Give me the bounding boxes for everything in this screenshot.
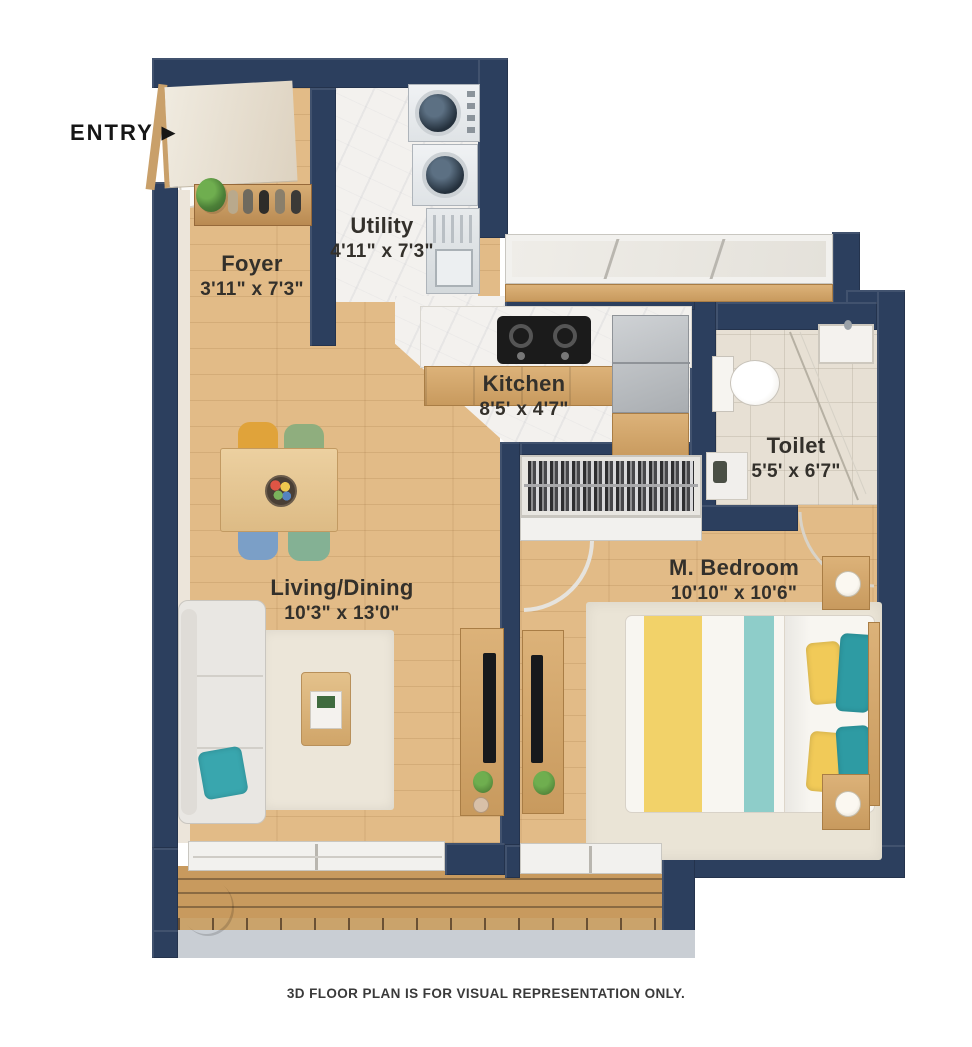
toilet-shelf [706,452,748,500]
utility-sink-basin [435,249,473,287]
dining-chair-blue [238,528,278,560]
nightstand-top [822,556,870,610]
wall-bedroom-bottom-left-stub [505,845,520,878]
toilet-bowl [730,360,780,406]
hob [497,316,591,364]
bed-stripe-teal [744,616,774,813]
wall-left [152,182,178,848]
wardrobe-rail-icon [524,484,698,487]
basin-faucet-icon [844,320,852,330]
sofa [178,600,266,824]
bed-stripe-yellow [644,616,702,813]
fridge-gap-line [613,362,690,364]
console-plant-pot-icon [473,771,493,793]
hob-knob-left-icon [517,352,525,360]
coffee-table-tray-icon [310,691,342,729]
kitchen-name: Kitchen [479,370,568,398]
slider-track-line [193,856,442,858]
hob-knob-right-icon [561,352,569,360]
kitchen-tall-shelf [612,413,689,459]
nightstand-bottom [822,774,870,830]
room-label-bedroom: M. Bedroom 10'10" x 10'6" [669,554,799,605]
soap-bottles-icon [713,461,727,483]
bedroom-window [520,843,662,874]
room-label-living: Living/Dining 10'3" x 13'0" [270,574,413,625]
slipper-4 [275,189,285,214]
balcony-bottom-edge [152,930,695,958]
bedroom-name: M. Bedroom [669,554,799,582]
sofa-pillow-teal [197,746,249,801]
hob-burner-left-icon [509,324,533,348]
utility-sink-drainboard [433,215,475,243]
coffee-table [301,672,351,746]
room-label-kitchen: Kitchen 8'5' x 4'7" [479,370,568,421]
foyer-dims: 3'11" x 7'3" [200,278,304,302]
kitchen-window-glass [512,241,826,277]
room-label-foyer: Foyer 3'11" x 7'3" [200,250,304,301]
wall-toilet-bottom [700,505,798,531]
dining-table [220,448,338,532]
tv-living-icon [483,653,496,763]
fridge [612,315,689,413]
tv-bedroom-icon [531,655,543,763]
tv-console-living [460,628,504,816]
sofa-seat-divider-1 [197,675,263,677]
disclaimer-text: 3D FLOOR PLAN IS FOR VISUAL REPRESENTATI… [0,986,972,1001]
tv-console-plant-icon [533,771,555,795]
room-label-utility: Utility 4'11" x 7'3" [330,212,434,263]
hob-burner-right-icon [553,324,577,348]
dryer-drum-icon [415,90,461,136]
bedroom-window-divider [589,846,592,873]
dining-chair-sage [288,529,330,561]
slipper-5 [291,190,301,214]
slipper-2 [243,189,253,214]
kitchen-window [505,234,833,284]
wall-utility-right [478,58,508,238]
wash-basin [818,324,874,364]
tv-console-bedroom [522,630,564,814]
entry-text: ENTRY [70,120,154,146]
slipper-3 [259,190,269,214]
kitchen-window-sill [505,284,833,302]
kitchen-dims: 8'5' x 4'7" [479,398,568,422]
bedroom-door-leaf [520,517,702,541]
utility-name: Utility [330,212,434,240]
floor-plan: ENTRY ▶ Foyer 3'11" x 7'3" Utility 4'11"… [0,0,972,1047]
washer-drum-icon [422,152,468,198]
entry-label: ENTRY ▶ [70,120,175,146]
dryer-controls [467,91,475,137]
utility-sink [426,208,480,294]
living-name: Living/Dining [270,574,413,602]
dryer [408,84,480,142]
washer [412,144,478,206]
wall-living-balcony-stub [445,843,505,875]
entry-arrow-icon: ▶ [162,123,175,143]
wardrobe [520,455,702,517]
table-lamp-bottom-icon [835,791,861,817]
room-label-toilet: Toilet 5'5' x 6'7" [751,432,840,483]
balcony-bottom-corner [152,930,178,958]
toilet-dims: 5'5' x 6'7" [751,460,840,484]
living-dims: 10'3" x 13'0" [270,602,413,626]
slipper-1 [228,190,238,214]
tray-book-icon [317,696,335,708]
toilet-name: Toilet [751,432,840,460]
balcony-railing-ties [178,918,662,930]
utility-dims: 4'11" x 7'3" [330,240,434,264]
console-knob-icon [473,797,489,813]
living-balcony-slider [188,841,445,871]
bedroom-dims: 10'10" x 10'6" [669,582,799,606]
foyer-name: Foyer [200,250,304,278]
fruit-bowl-icon [265,475,297,507]
table-lamp-top-icon [835,571,861,597]
balcony-plant [180,878,232,934]
entry-door-leaf [159,81,297,189]
foyer-plant [196,178,226,212]
sofa-back-cushion [181,609,197,815]
